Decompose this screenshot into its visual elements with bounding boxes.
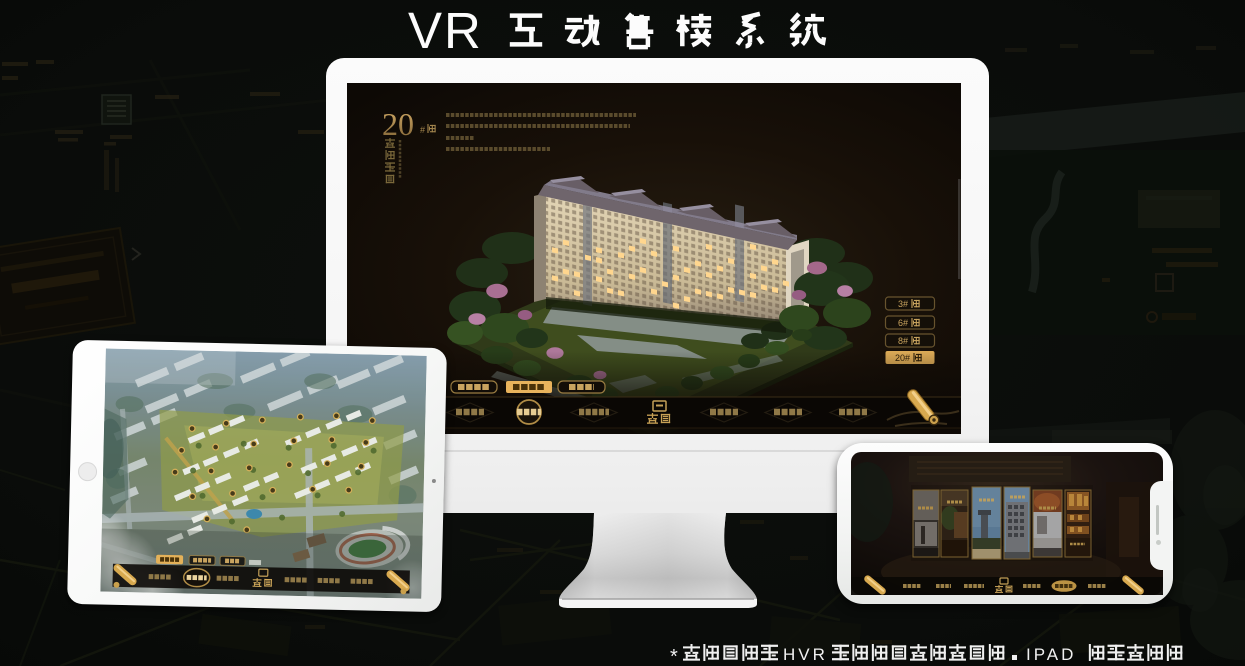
svg-text:IPAD: IPAD bbox=[1026, 645, 1076, 664]
svg-text:20: 20 bbox=[382, 106, 414, 142]
svg-text:6#: 6# bbox=[898, 318, 908, 328]
svg-text:*: * bbox=[670, 646, 678, 666]
svg-text:HVR: HVR bbox=[783, 645, 828, 664]
svg-text:8#: 8# bbox=[898, 336, 908, 346]
svg-text:VR: VR bbox=[408, 4, 483, 59]
svg-text:3#: 3# bbox=[898, 299, 908, 309]
svg-text:#: # bbox=[420, 125, 425, 135]
